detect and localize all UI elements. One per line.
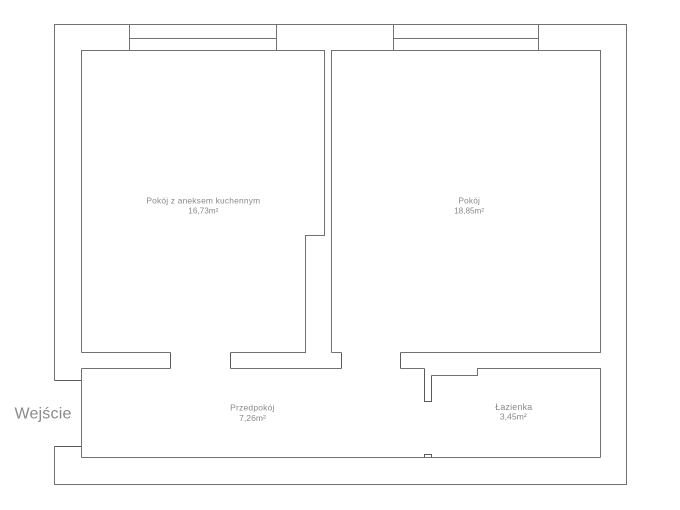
svg-text:3,45m²: 3,45m² bbox=[500, 412, 527, 422]
svg-text:Wejście: Wejście bbox=[14, 406, 71, 423]
svg-text:16,73m²: 16,73m² bbox=[188, 206, 218, 215]
svg-text:Pokój: Pokój bbox=[458, 196, 480, 206]
svg-text:Łazienka: Łazienka bbox=[495, 402, 532, 412]
svg-text:18,85m²: 18,85m² bbox=[454, 206, 484, 215]
svg-text:7,26m²: 7,26m² bbox=[239, 413, 266, 423]
svg-text:Pokój z aneksem kuchennym: Pokój z aneksem kuchennym bbox=[146, 196, 260, 206]
svg-text:Przedpokój: Przedpokój bbox=[230, 403, 275, 413]
